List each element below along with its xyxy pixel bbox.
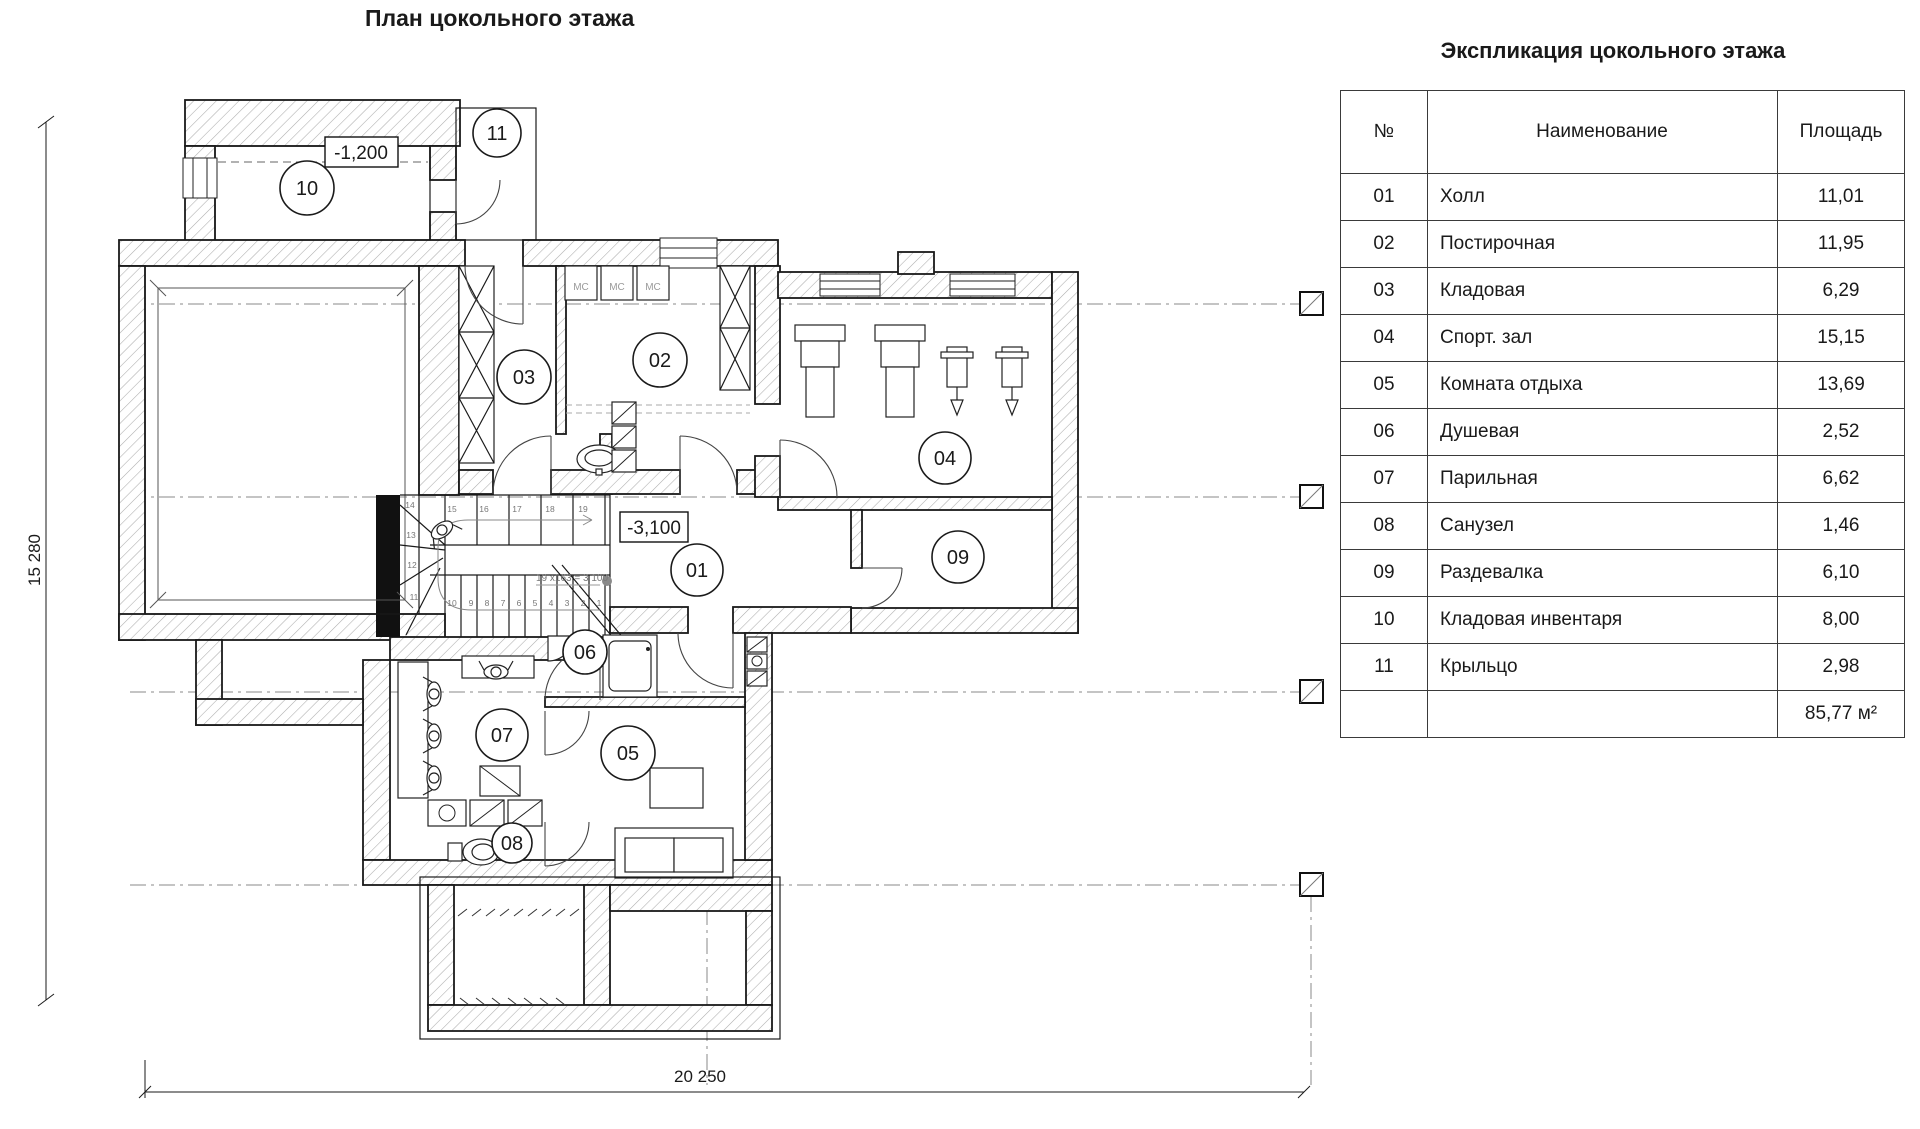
window-gym-2 <box>950 274 1015 296</box>
stair-step-number: 5 <box>533 598 538 608</box>
room-marker-03: 03 <box>497 350 551 404</box>
washing-machine-label: МС <box>645 282 661 293</box>
dimension-left-label: 15 280 <box>25 534 44 586</box>
treadmill-icon <box>795 325 845 417</box>
gym-equipment <box>795 325 1028 417</box>
stair-step-number: 6 <box>517 598 522 608</box>
light-well <box>420 877 780 1039</box>
washing-machine-label: МС <box>573 282 589 293</box>
room-marker-01: 01 <box>671 544 723 596</box>
svg-text:10: 10 <box>296 178 318 200</box>
stair-step-number: 14 <box>405 500 415 510</box>
window-laundry <box>660 238 717 268</box>
dimension-bottom-label: 20 250 <box>674 1067 726 1086</box>
stair-step-number: 8 <box>485 598 490 608</box>
door-laundry-02 <box>680 436 737 494</box>
door-gym-04 <box>780 440 837 497</box>
stair-step-number: 4 <box>549 598 554 608</box>
dimension-left: 15 280 <box>25 116 54 1006</box>
svg-text:03: 03 <box>513 367 535 389</box>
stair-step-number: 3 <box>565 598 570 608</box>
stair-step-number: 17 <box>512 504 522 514</box>
room-marker-07: 07 <box>476 709 528 761</box>
svg-text:11: 11 <box>487 123 508 145</box>
page: { "plan": { "title": "План цокольного эт… <box>0 0 1920 1129</box>
svg-text:05: 05 <box>617 743 639 765</box>
svg-text:02: 02 <box>649 350 671 372</box>
room-marker-04: 04 <box>919 432 971 484</box>
washing-machine-labels: МСМСМС <box>573 282 661 293</box>
svg-text:01: 01 <box>686 560 708 582</box>
treadmill-icon <box>875 325 925 417</box>
door-hall-lounge <box>678 633 733 688</box>
stair-step-numbers: 14131211109876543211516171819 <box>405 500 601 608</box>
elevation-upper: -1,200 <box>334 143 388 164</box>
lounge-furniture <box>615 768 733 878</box>
floor-plan-canvas: МСМСМС <box>0 0 1920 1129</box>
stair-step-number: 11 <box>410 592 419 602</box>
room-marker-08: 08 <box>492 823 532 863</box>
stair-step-number: 9 <box>469 598 474 608</box>
stair-step-number: 12 <box>407 560 417 570</box>
stair-step-number: 15 <box>447 504 457 514</box>
stair-note: 19 x163 = 3 100 <box>536 573 608 584</box>
stair-step-number: 1 <box>597 598 602 608</box>
stair-step-number: 10 <box>447 598 457 608</box>
washing-machine-label: МС <box>609 282 625 293</box>
door-storage-03 <box>493 436 551 494</box>
axis-grid-lines <box>130 304 1311 1085</box>
room-marker-10: 10 <box>280 161 334 215</box>
stair-step-number: 2 <box>581 598 586 608</box>
elevation-lower: -3,100 <box>627 518 681 539</box>
exercise-machine-icon <box>996 347 1028 415</box>
svg-text:06: 06 <box>574 642 596 664</box>
svg-text:07: 07 <box>491 725 513 747</box>
window-gym-1 <box>820 274 880 296</box>
room-marker-06: 06 <box>563 630 607 674</box>
door-dressing-09 <box>862 568 902 608</box>
stair-step-number: 18 <box>545 504 555 514</box>
stair-step-number: 19 <box>578 504 588 514</box>
room-marker-09: 09 <box>932 531 984 583</box>
room-marker-11: 11 <box>473 109 521 157</box>
stair-step-number: 13 <box>406 530 416 540</box>
room-marker-05: 05 <box>601 726 655 780</box>
door-sauna-07 <box>545 711 589 755</box>
exercise-machine-icon <box>941 347 973 415</box>
axis-column-markers <box>1300 292 1323 896</box>
stair-step-number: 7 <box>501 598 506 608</box>
svg-text:04: 04 <box>934 448 956 470</box>
window-annex-left <box>183 158 217 198</box>
door-porch <box>456 180 500 224</box>
room-marker-02: 02 <box>633 333 687 387</box>
svg-text:08: 08 <box>501 833 523 855</box>
svg-text:09: 09 <box>947 547 969 569</box>
stair-step-number: 16 <box>479 504 489 514</box>
walls <box>119 100 1078 885</box>
dimension-bottom: 20 250 <box>139 1060 1310 1098</box>
